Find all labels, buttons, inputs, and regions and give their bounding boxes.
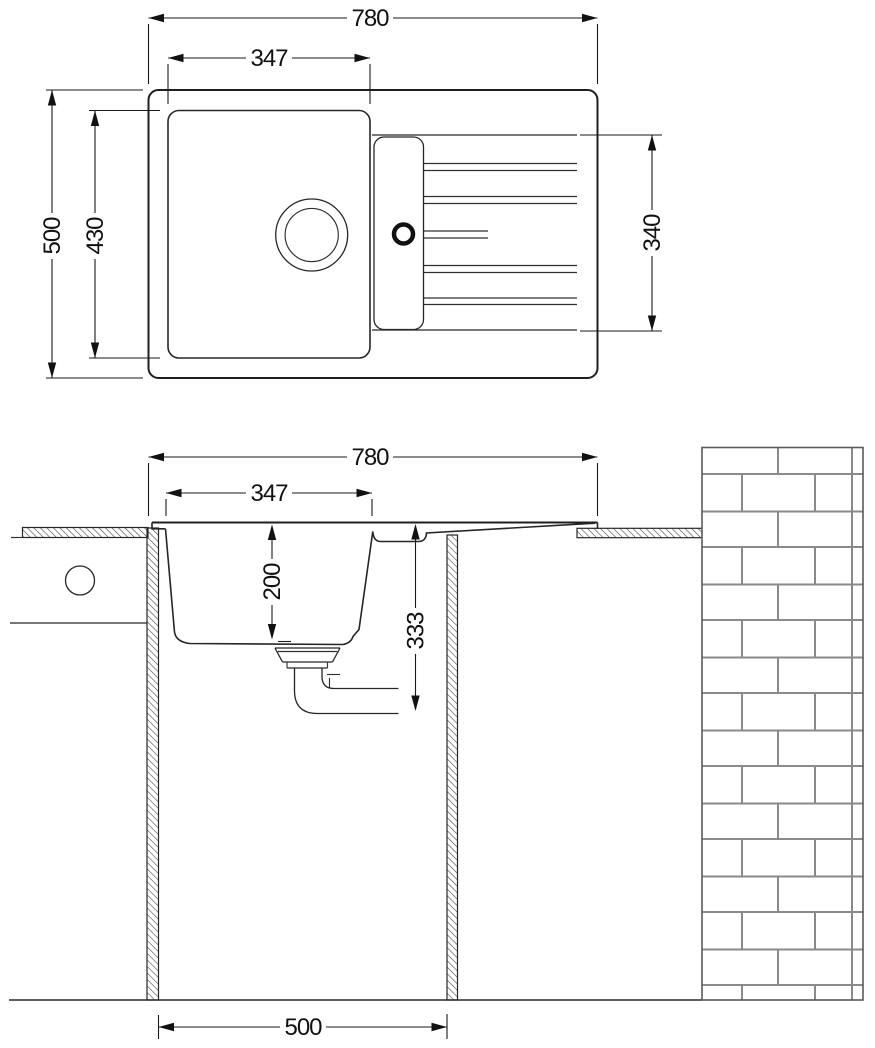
dim-top-overall-width: 780 bbox=[149, 5, 598, 84]
dim-label-top-bowl-length: 430 bbox=[82, 217, 109, 255]
dim-label-section-bowl-top-width: 347 bbox=[250, 480, 288, 507]
dim-section-bowl-top-width: 347 bbox=[166, 480, 372, 516]
sink-technical-drawing: 780 347 500 bbox=[0, 0, 875, 1048]
arrowhead-down bbox=[648, 316, 656, 332]
bowl-outline-top bbox=[168, 111, 370, 359]
dim-section-installation-depth: 333 bbox=[403, 524, 430, 711]
arrowhead-left bbox=[149, 453, 165, 461]
arrowhead-up bbox=[411, 524, 419, 540]
top-view: 780 347 500 bbox=[39, 5, 666, 378]
arrowhead-right bbox=[357, 489, 373, 497]
dim-label-top-overall-width: 780 bbox=[351, 5, 389, 32]
arrowhead-down bbox=[48, 363, 56, 379]
arrowhead-up bbox=[48, 90, 56, 106]
waste-pipe bbox=[295, 668, 399, 714]
dim-label-top-bowl-width: 347 bbox=[250, 45, 288, 72]
cabinet-left-panel bbox=[10, 538, 147, 624]
arrowhead-down bbox=[411, 696, 419, 712]
section-view: 780 347 bbox=[9, 444, 863, 1041]
arrowhead-up bbox=[91, 111, 99, 127]
dim-section-overall-width: 780 bbox=[149, 444, 598, 516]
arrowhead-left bbox=[168, 54, 184, 62]
arrowhead-down bbox=[91, 343, 99, 359]
brick-wall bbox=[702, 448, 863, 1001]
dim-label-section-overall-width: 780 bbox=[351, 444, 389, 471]
faucet-ledge-top bbox=[374, 137, 424, 330]
dim-label-top-overall-depth: 500 bbox=[39, 217, 66, 255]
arrowhead-up bbox=[648, 135, 656, 151]
dim-label-section-bowl-depth: 200 bbox=[259, 563, 286, 601]
arrowhead-left bbox=[159, 1023, 175, 1031]
dim-label-section-cabinet-inner-width: 500 bbox=[284, 1014, 322, 1041]
dim-section-bowl-depth: 200 bbox=[259, 525, 291, 642]
cabinet-wall-left bbox=[147, 528, 159, 1000]
arrowhead-right bbox=[432, 1023, 448, 1031]
arrowhead-right bbox=[355, 54, 371, 62]
arrowhead-up bbox=[268, 525, 276, 541]
dim-label-top-drainboard-length: 340 bbox=[639, 214, 666, 252]
drawing-svg: 780 347 500 bbox=[0, 0, 875, 1048]
bowl-and-drainboard-profile bbox=[166, 523, 596, 644]
arrowhead-right bbox=[582, 14, 598, 22]
sink-profile-section bbox=[152, 523, 598, 645]
countertop-left-section bbox=[23, 528, 149, 538]
arrowhead-left bbox=[149, 14, 165, 22]
arrowhead-left bbox=[166, 489, 182, 497]
arrowhead-down bbox=[268, 624, 276, 640]
dim-label-section-installation-depth: 333 bbox=[403, 612, 430, 650]
countertop-right-section bbox=[577, 528, 703, 537]
dim-section-cabinet-inner-width: 500 bbox=[159, 1014, 448, 1041]
arrowhead-right bbox=[582, 453, 598, 461]
cabinet-hole bbox=[66, 566, 95, 595]
cabinet-wall-right bbox=[447, 535, 458, 1000]
drain-assembly-section bbox=[275, 648, 340, 668]
